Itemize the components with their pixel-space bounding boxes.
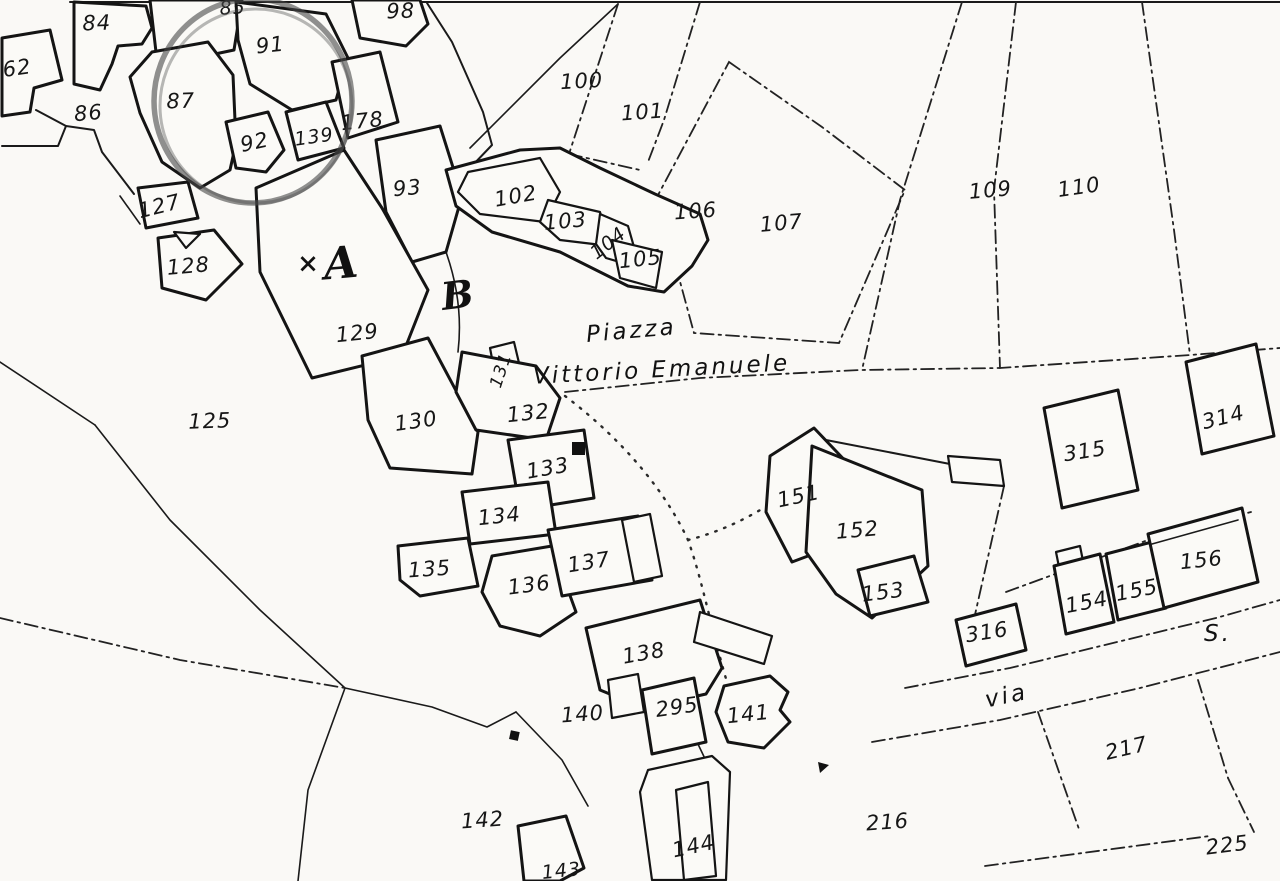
parcel-label: 156 <box>1179 546 1224 574</box>
corner-blob <box>572 442 585 455</box>
parcel-label: 141 <box>726 700 771 728</box>
parcel-label: 129 <box>335 319 380 347</box>
parcel-label: 98 <box>386 0 416 23</box>
building-140-step <box>608 674 644 718</box>
parcel-label: 105 <box>618 245 663 273</box>
parcel-label: 225 <box>1204 831 1250 860</box>
parcel-label: 152 <box>835 516 880 544</box>
parcel-label: 109 <box>968 176 1013 204</box>
parcel-label: 100 <box>559 68 603 94</box>
parcel-label: 142 <box>460 807 505 834</box>
street-edge <box>66 126 134 194</box>
parcel-label: 87 <box>166 89 196 114</box>
parcel-label: 91 <box>255 32 286 59</box>
small-building <box>948 456 1004 486</box>
courtyard-91 <box>236 2 348 110</box>
parcel-label: 103 <box>543 207 588 235</box>
parcel-label: 107 <box>759 209 804 237</box>
block-letter: × <box>297 249 319 279</box>
via-road-lower-edge <box>872 652 1280 742</box>
block-letter: B <box>438 270 476 319</box>
place-label: via <box>983 679 1031 713</box>
parcel-label: 217 <box>1103 732 1150 765</box>
parcel-label: 216 <box>865 809 910 836</box>
parcel-216-bottom <box>985 836 1210 866</box>
parcel-label: 125 <box>188 408 232 433</box>
parcel-label: 86 <box>73 100 104 126</box>
block-152-right-edge <box>972 486 1004 628</box>
fan-line <box>1142 2 1190 355</box>
place-label: S. <box>1204 621 1232 647</box>
place-label: Piazza <box>585 314 678 348</box>
building-314 <box>1186 344 1274 454</box>
survey-dot <box>509 730 520 741</box>
parcel-216-217-divider <box>1038 712 1080 832</box>
triangle-mark <box>818 762 829 773</box>
parcel-142-edge <box>298 688 345 881</box>
parcel-label: 106 <box>673 198 718 225</box>
parcel-label: 110 <box>1056 172 1102 202</box>
parcel-142-edge <box>345 688 516 727</box>
map-canvas: 6284858687919213917898931001011021031041… <box>0 0 1280 881</box>
parcel-label: 93 <box>392 175 423 201</box>
place-label: Vittorio Emanuele <box>532 350 790 389</box>
parcel-217-225-divider <box>1198 680 1228 778</box>
parcel-101-edge <box>648 2 700 162</box>
parcel-label: 143 <box>541 858 582 881</box>
parcel-label: 128 <box>166 252 211 280</box>
parcel-label: 140 <box>560 701 605 728</box>
parcel-label: 84 <box>82 11 112 36</box>
field-boundary <box>0 618 345 688</box>
parcel-label: 134 <box>477 502 522 530</box>
parcel-225-edge <box>1228 778 1254 832</box>
fan-line <box>862 2 962 370</box>
field-boundary <box>0 362 95 425</box>
parcel-label: 62 <box>1 54 33 82</box>
cadastral-map: 6284858687919213917898931001011021031041… <box>0 0 1280 881</box>
piazza-footpath <box>688 504 770 540</box>
parcel-label: 132 <box>506 399 551 427</box>
parcel-label: 135 <box>407 556 452 583</box>
courtyard-87 <box>130 42 236 188</box>
parcel-label: 101 <box>620 99 665 126</box>
